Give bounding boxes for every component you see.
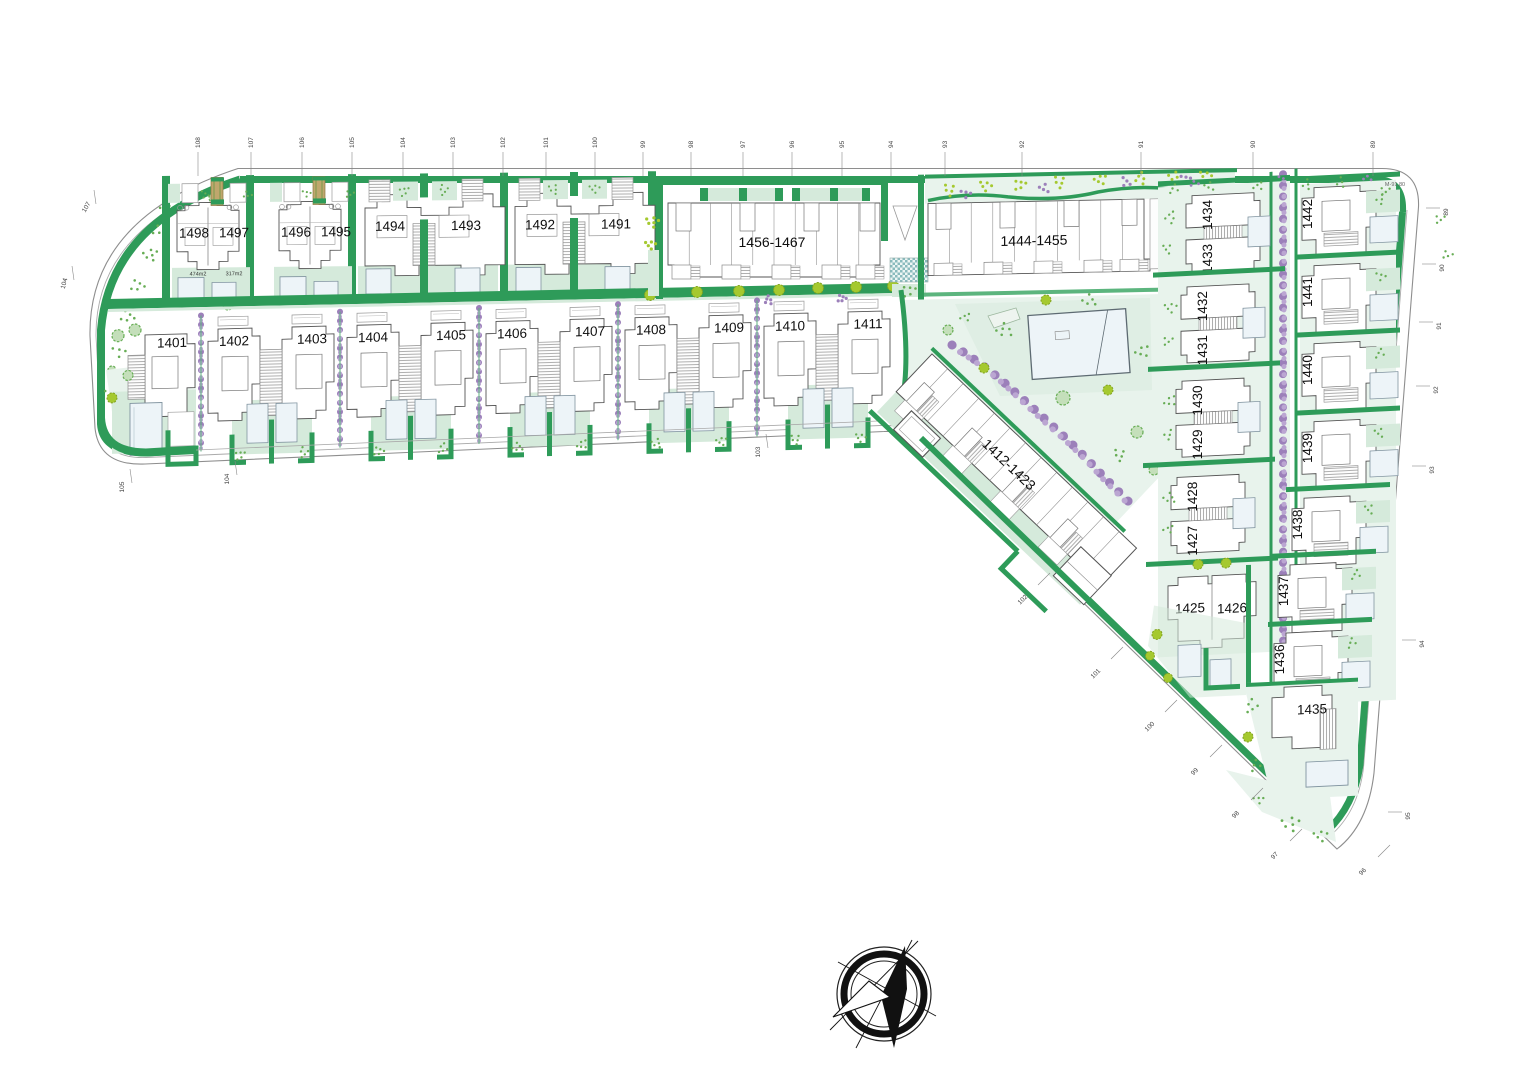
svg-text:474m2: 474m2 — [190, 272, 207, 278]
svg-text:103: 103 — [450, 137, 457, 148]
svg-text:104: 104 — [224, 473, 231, 484]
svg-text:95: 95 — [839, 140, 846, 148]
svg-text:1406: 1406 — [497, 326, 527, 342]
svg-text:1428: 1428 — [1185, 481, 1200, 512]
svg-text:1497: 1497 — [219, 225, 249, 240]
svg-text:1492: 1492 — [525, 217, 555, 232]
svg-text:1432: 1432 — [1195, 291, 1210, 322]
svg-text:94: 94 — [888, 140, 895, 148]
svg-text:90: 90 — [1439, 264, 1446, 272]
svg-text:1408: 1408 — [636, 322, 666, 338]
svg-text:1435: 1435 — [1297, 701, 1327, 717]
svg-text:1407: 1407 — [575, 324, 605, 340]
svg-text:107: 107 — [248, 137, 255, 148]
svg-text:1495: 1495 — [321, 224, 351, 239]
svg-text:1411: 1411 — [853, 316, 882, 332]
svg-text:101: 101 — [543, 137, 550, 148]
svg-text:1496: 1496 — [281, 225, 311, 240]
svg-text:93: 93 — [942, 140, 949, 148]
svg-text:103: 103 — [755, 446, 762, 457]
svg-text:1410: 1410 — [775, 318, 805, 334]
svg-text:1401: 1401 — [157, 335, 187, 351]
svg-text:1438: 1438 — [1290, 509, 1305, 540]
svg-text:1431: 1431 — [1195, 335, 1210, 366]
svg-text:1456-1467: 1456-1467 — [739, 234, 806, 250]
svg-text:1444-1455: 1444-1455 — [1001, 232, 1068, 249]
svg-text:90: 90 — [1250, 140, 1257, 148]
svg-text:92: 92 — [1019, 140, 1026, 148]
svg-text:1402: 1402 — [219, 333, 249, 349]
svg-text:1409: 1409 — [714, 320, 744, 336]
svg-text:104: 104 — [400, 137, 407, 148]
svg-text:102: 102 — [500, 137, 507, 148]
svg-text:106: 106 — [299, 137, 306, 148]
svg-text:95: 95 — [1405, 812, 1412, 820]
svg-text:94: 94 — [1419, 640, 1426, 648]
svg-text:91: 91 — [1138, 140, 1145, 148]
svg-text:1440: 1440 — [1300, 355, 1315, 386]
svg-text:99: 99 — [640, 140, 647, 148]
svg-text:89: 89 — [1370, 140, 1377, 148]
svg-text:1436: 1436 — [1272, 644, 1287, 675]
svg-text:1430: 1430 — [1190, 385, 1205, 416]
svg-text:1442: 1442 — [1300, 199, 1315, 230]
svg-text:1403: 1403 — [297, 331, 327, 347]
svg-text:108: 108 — [195, 137, 202, 148]
svg-text:96: 96 — [789, 140, 796, 148]
svg-text:1426: 1426 — [1217, 600, 1247, 616]
svg-text:1498: 1498 — [179, 225, 209, 240]
svg-text:1434: 1434 — [1200, 199, 1215, 230]
svg-text:98: 98 — [688, 140, 695, 148]
svg-text:M-91.80: M-91.80 — [1385, 182, 1405, 188]
svg-text:1404: 1404 — [358, 329, 389, 345]
svg-text:1439: 1439 — [1300, 433, 1315, 464]
svg-text:1429: 1429 — [1190, 429, 1205, 460]
svg-text:91: 91 — [1436, 322, 1443, 330]
svg-text:1493: 1493 — [451, 218, 481, 233]
svg-text:93: 93 — [1429, 466, 1436, 474]
svg-text:1441: 1441 — [1300, 277, 1315, 308]
svg-text:1427: 1427 — [1185, 525, 1200, 556]
svg-text:1491: 1491 — [601, 216, 631, 231]
svg-text:317m2: 317m2 — [226, 271, 243, 277]
svg-text:92: 92 — [1433, 386, 1440, 394]
svg-text:1494: 1494 — [375, 219, 406, 234]
svg-text:105: 105 — [349, 137, 356, 148]
svg-text:105: 105 — [119, 481, 126, 492]
svg-text:89: 89 — [1443, 208, 1450, 216]
svg-text:100: 100 — [592, 137, 599, 148]
svg-text:1437: 1437 — [1276, 576, 1291, 607]
svg-text:97: 97 — [740, 140, 747, 148]
svg-text:1405: 1405 — [436, 327, 466, 343]
